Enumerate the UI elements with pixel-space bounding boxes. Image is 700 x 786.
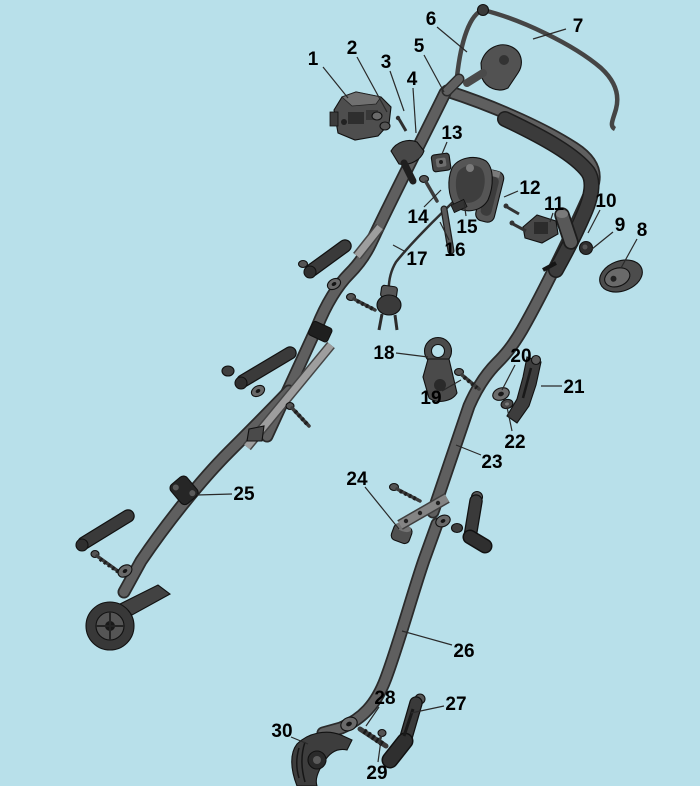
grommet-part13 [431, 153, 451, 172]
part-label-9: 9 [615, 215, 626, 236]
part-label-16: 16 [444, 240, 465, 261]
part-label-26: 26 [453, 641, 474, 662]
part-label-20: 20 [510, 346, 531, 367]
cable-plug-connector [377, 285, 401, 330]
leader-line-5 [424, 55, 444, 92]
screw-part19 [455, 369, 480, 390]
corner-joint-part6 [467, 45, 521, 90]
part-label-7: 7 [573, 16, 584, 37]
exploded-parts-diagram: 1234567891011121314151617181920212223242… [0, 0, 700, 786]
pin-part3 [396, 116, 406, 131]
part-label-17: 17 [406, 249, 427, 270]
part-label-30: 30 [271, 721, 292, 742]
leader-line-20 [502, 365, 515, 390]
nut-part9 [580, 242, 593, 255]
part-label-13: 13 [441, 123, 462, 144]
clamp-part25 [168, 474, 200, 507]
part-label-23: 23 [481, 452, 502, 473]
part-label-6: 6 [426, 9, 437, 30]
leader-line-17 [393, 245, 406, 252]
part-label-8: 8 [637, 220, 648, 241]
lever-part4 [391, 140, 424, 181]
part-label-5: 5 [414, 36, 425, 57]
part-label-28: 28 [374, 688, 395, 709]
part-label-10: 10 [595, 191, 616, 212]
leader-line-18 [396, 353, 428, 357]
diagram-canvas: 1234567891011121314151617181920212223242… [0, 0, 700, 786]
part-label-29: 29 [366, 763, 387, 784]
part-label-1: 1 [308, 49, 319, 70]
part-label-3: 3 [381, 52, 392, 73]
leader-line-26 [402, 631, 452, 645]
leader-line-9 [592, 232, 613, 249]
leader-line-1 [323, 67, 348, 98]
part-label-24: 24 [346, 469, 368, 490]
part-label-15: 15 [456, 217, 478, 238]
part-label-18: 18 [373, 343, 394, 364]
mount-bracket-part30 [292, 732, 352, 786]
part-label-19: 19 [420, 388, 441, 409]
part-label-27: 27 [445, 694, 466, 715]
part-label-2: 2 [347, 38, 358, 59]
part-label-11: 11 [544, 194, 565, 215]
left-mount-hardware [76, 516, 134, 580]
bail-ball-end [478, 5, 489, 16]
part-label-22: 22 [504, 432, 525, 453]
leader-line-4 [413, 88, 416, 133]
part-label-25: 25 [233, 484, 255, 505]
part-label-21: 21 [563, 377, 585, 398]
part-label-4: 4 [407, 69, 418, 90]
leader-line-25 [197, 494, 232, 495]
end-cap-part8 [595, 254, 647, 297]
leader-line-24 [365, 487, 399, 529]
leader-line-12 [504, 191, 518, 197]
part-label-12: 12 [519, 178, 540, 199]
leader-line-3 [390, 71, 404, 111]
part-label-14: 14 [407, 207, 429, 228]
